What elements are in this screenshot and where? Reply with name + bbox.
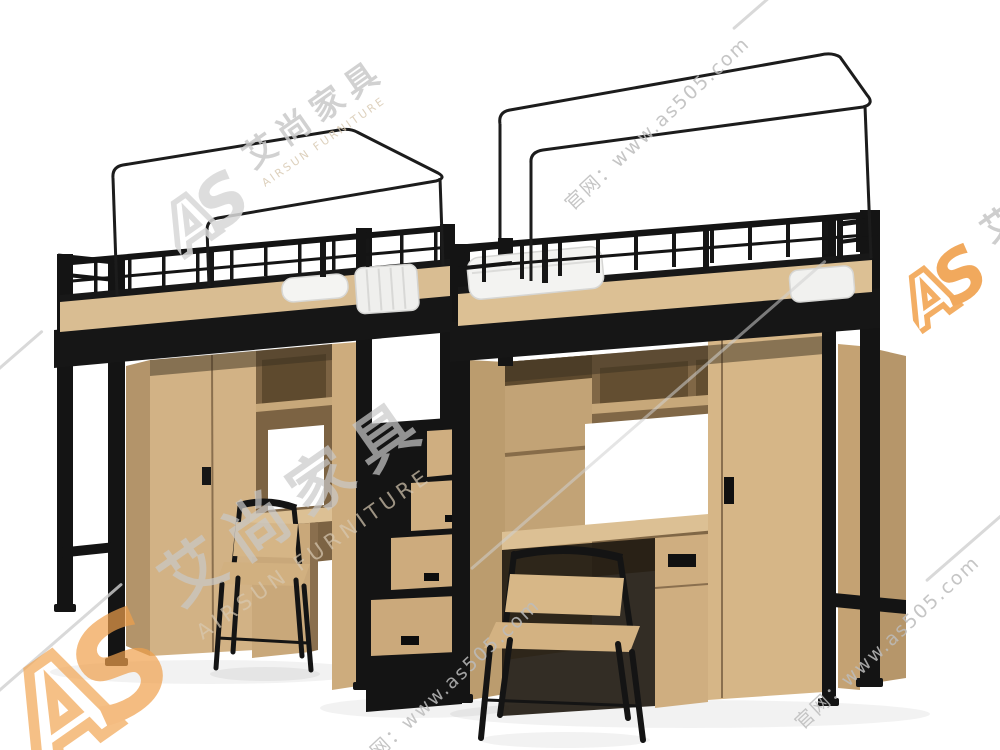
staircase-drawer-3 (391, 534, 457, 590)
right-underdesk-drawer-handle (668, 554, 696, 567)
staircase-drawer-3-handle (424, 573, 439, 581)
right-loft-bed (448, 54, 906, 716)
left-right-column (332, 342, 358, 690)
right-wardrobe-handle (724, 477, 734, 504)
left-wardrobe-door-seam (212, 355, 213, 652)
staircase-drawers (366, 417, 462, 712)
right-side-panel-outer (880, 350, 906, 682)
right-wardrobe-front (708, 330, 824, 700)
left-wardrobe-handle (202, 467, 211, 485)
right-net-frame (500, 54, 871, 281)
left-chair-backrest (233, 522, 298, 558)
furniture-scene (0, 0, 1000, 750)
left-wardrobe-side-panel (126, 360, 150, 656)
left-cubby-back-opening (268, 425, 324, 510)
staircase-drawer-4 (371, 596, 457, 656)
right-chair-backrest (505, 574, 624, 616)
right-side-panel-upper (838, 344, 860, 690)
staircase-drawer-2 (411, 480, 458, 531)
staircase-drawer-4-handle (401, 636, 419, 645)
left-underdesk-cabinet-side (310, 522, 318, 652)
product-render-canvas: 官网：www.as505.com 官网：www.as505.com 官网：www… (0, 0, 1000, 750)
